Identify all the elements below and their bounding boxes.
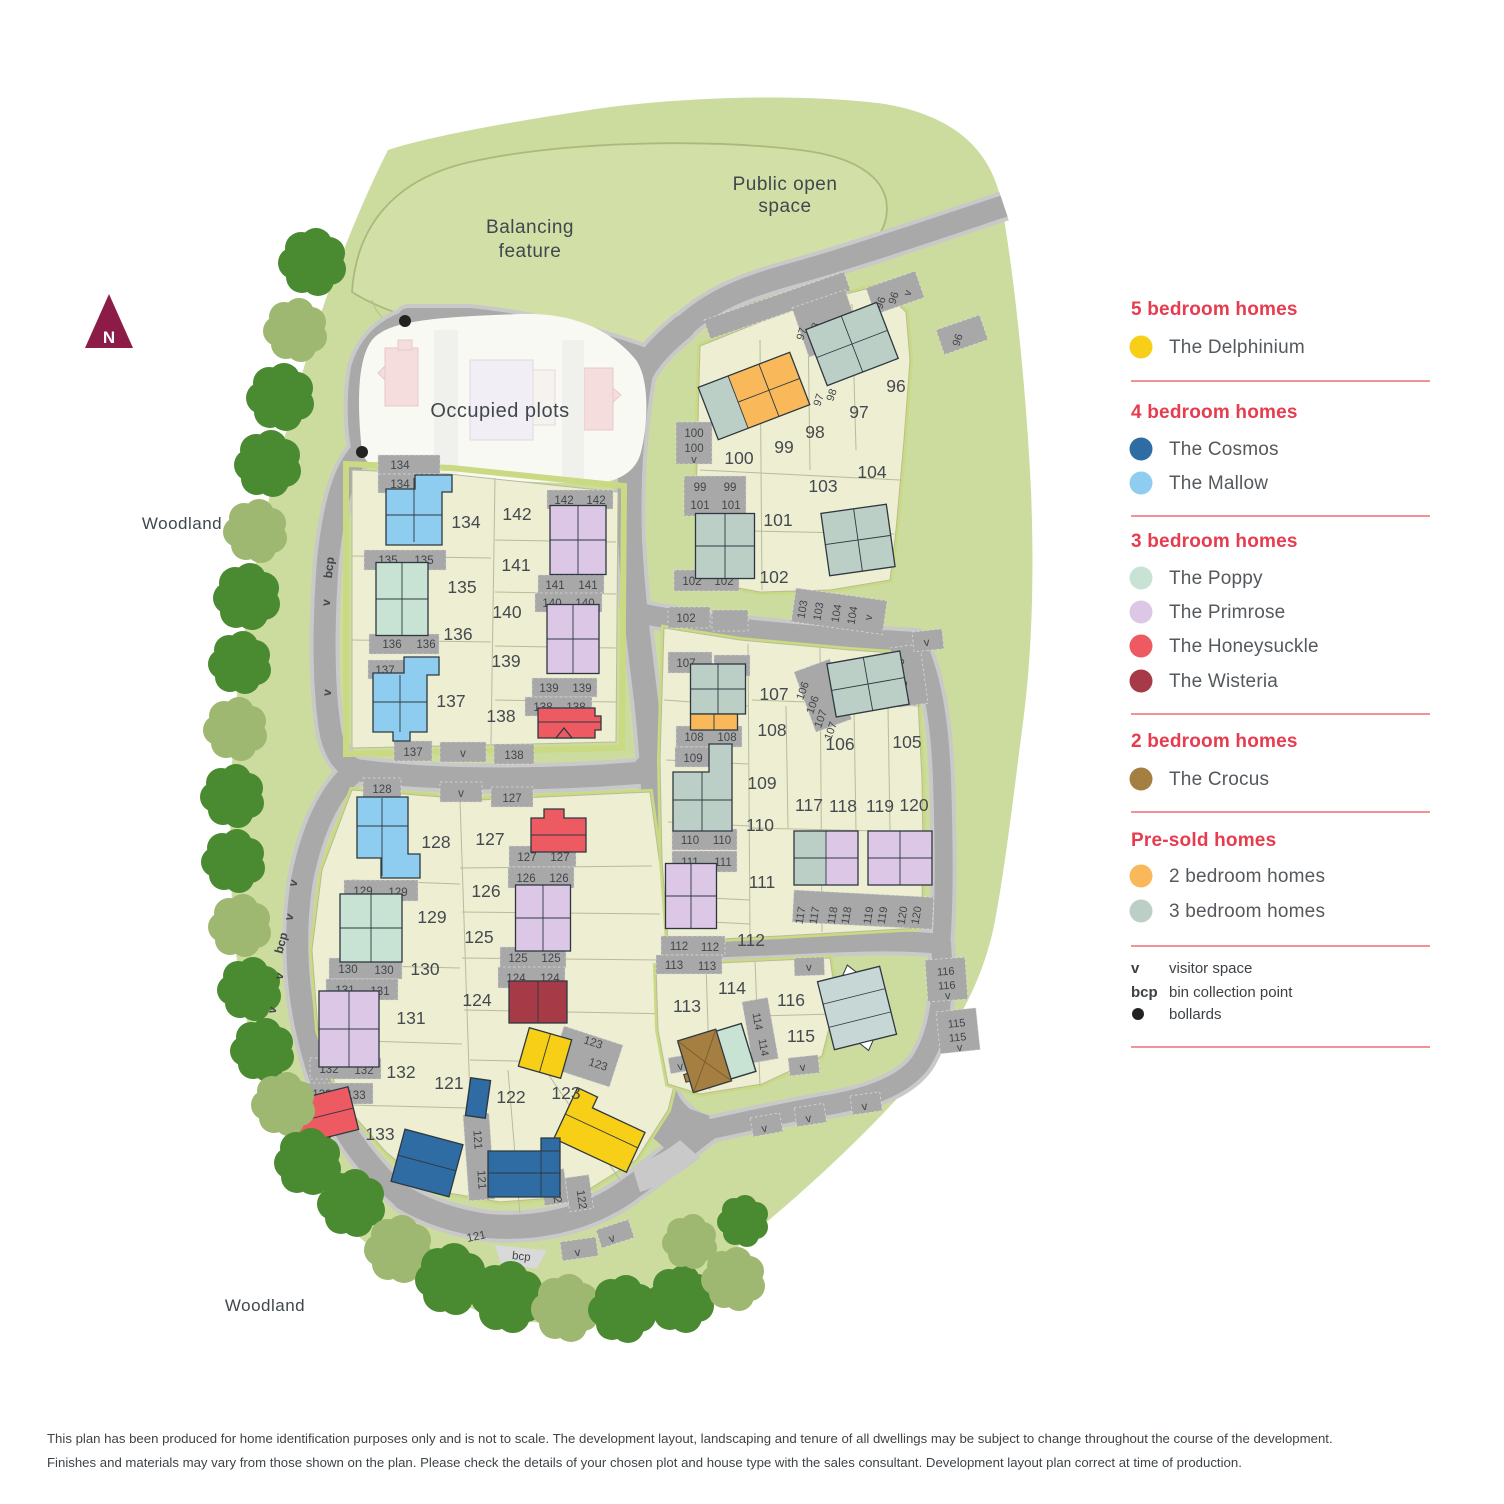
svg-text:visitor space: visitor space [1169, 960, 1252, 977]
svg-text:136: 136 [416, 639, 435, 651]
svg-text:4 bedroom homes: 4 bedroom homes [1131, 402, 1298, 423]
svg-text:bcp: bcp [1131, 984, 1158, 1001]
svg-text:3 bedroom homes: 3 bedroom homes [1131, 531, 1298, 552]
svg-text:102: 102 [676, 613, 695, 625]
svg-text:134: 134 [390, 460, 410, 472]
svg-text:116: 116 [937, 965, 955, 978]
svg-text:127: 127 [550, 852, 569, 864]
svg-text:bcp: bcp [321, 556, 337, 579]
svg-text:120: 120 [899, 795, 928, 815]
svg-text:111: 111 [749, 872, 776, 892]
svg-text:The Crocus: The Crocus [1169, 769, 1269, 790]
svg-text:134: 134 [451, 512, 480, 532]
svg-text:99: 99 [694, 482, 707, 494]
svg-text:2 bedroom homes: 2 bedroom homes [1131, 731, 1298, 752]
svg-text:112: 112 [737, 930, 765, 950]
svg-text:113: 113 [698, 961, 716, 973]
svg-text:127: 127 [502, 793, 521, 805]
svg-text:v: v [460, 748, 466, 760]
svg-text:3 bedroom homes: 3 bedroom homes [1169, 901, 1325, 922]
svg-text:136: 136 [443, 624, 472, 644]
svg-text:125: 125 [464, 927, 493, 947]
svg-text:138: 138 [486, 706, 515, 726]
svg-text:136: 136 [382, 639, 401, 651]
svg-text:129: 129 [417, 907, 446, 927]
svg-text:v: v [1131, 960, 1140, 977]
svg-text:141: 141 [578, 580, 597, 592]
svg-text:The Primrose: The Primrose [1169, 602, 1285, 623]
svg-text:Pre-sold homes: Pre-sold homes [1131, 830, 1276, 851]
svg-text:130: 130 [410, 959, 439, 979]
svg-text:135: 135 [447, 577, 476, 597]
svg-text:141: 141 [545, 580, 564, 592]
svg-text:The Cosmos: The Cosmos [1169, 439, 1279, 460]
svg-text:Finishes and materials may var: Finishes and materials may vary from tho… [47, 1455, 1242, 1470]
svg-text:109: 109 [683, 753, 702, 765]
svg-text:Woodland: Woodland [142, 514, 222, 533]
svg-text:109: 109 [747, 773, 776, 793]
svg-text:121: 121 [470, 1130, 483, 1150]
svg-text:123: 123 [551, 1083, 580, 1103]
svg-text:The Poppy: The Poppy [1169, 568, 1263, 589]
svg-text:121: 121 [474, 1170, 487, 1190]
svg-text:126: 126 [471, 881, 500, 901]
svg-text:137: 137 [436, 691, 465, 711]
svg-text:125: 125 [541, 953, 560, 965]
svg-text:v: v [458, 788, 464, 800]
svg-text:113: 113 [665, 960, 683, 972]
svg-text:121: 121 [434, 1073, 463, 1093]
svg-text:140: 140 [492, 602, 521, 622]
svg-text:116: 116 [777, 990, 805, 1010]
svg-text:Balancing: Balancing [486, 217, 574, 238]
svg-text:105: 105 [892, 732, 921, 752]
svg-text:98: 98 [805, 422, 824, 442]
svg-text:110: 110 [746, 815, 774, 835]
svg-text:130: 130 [338, 964, 357, 976]
svg-text:133: 133 [365, 1124, 394, 1144]
svg-text:The Delphinium: The Delphinium [1169, 337, 1305, 358]
svg-text:v: v [806, 962, 812, 974]
svg-text:v: v [691, 454, 697, 466]
svg-text:101: 101 [690, 500, 709, 512]
svg-text:feature: feature [499, 241, 562, 262]
svg-text:117: 117 [795, 795, 823, 815]
svg-text:139: 139 [539, 683, 558, 695]
svg-text:137: 137 [403, 747, 422, 759]
svg-text:114: 114 [718, 978, 746, 998]
svg-text:100: 100 [724, 448, 753, 468]
svg-text:96: 96 [886, 376, 905, 396]
svg-text:This plan has been produced fo: This plan has been produced for home ide… [47, 1431, 1333, 1446]
svg-text:128: 128 [372, 784, 391, 796]
svg-text:127: 127 [475, 829, 504, 849]
svg-text:132: 132 [386, 1062, 415, 1082]
svg-text:101: 101 [763, 510, 792, 530]
svg-text:101: 101 [721, 500, 740, 512]
svg-text:118: 118 [829, 796, 857, 816]
svg-text:bin collection point: bin collection point [1169, 984, 1293, 1001]
svg-text:125: 125 [508, 953, 527, 965]
svg-text:The Honeysuckle: The Honeysuckle [1169, 636, 1319, 657]
svg-text:138: 138 [504, 750, 523, 762]
svg-text:Woodland: Woodland [225, 1296, 305, 1315]
svg-text:124: 124 [462, 990, 491, 1010]
svg-text:131: 131 [396, 1008, 425, 1028]
svg-text:99: 99 [724, 482, 737, 494]
svg-text:N: N [103, 328, 115, 347]
svg-text:142: 142 [502, 504, 531, 524]
svg-text:115: 115 [787, 1026, 815, 1046]
svg-text:space: space [758, 196, 811, 217]
svg-text:110: 110 [681, 835, 699, 847]
svg-text:2 bedroom homes: 2 bedroom homes [1169, 866, 1325, 887]
svg-text:112: 112 [670, 941, 688, 953]
svg-text:103: 103 [808, 476, 837, 496]
svg-text:130: 130 [374, 965, 393, 977]
svg-text:108: 108 [757, 720, 786, 740]
svg-text:139: 139 [491, 651, 520, 671]
svg-text:113: 113 [673, 996, 701, 1016]
svg-text:bollards: bollards [1169, 1006, 1222, 1023]
svg-text:122: 122 [496, 1087, 525, 1107]
svg-text:126: 126 [516, 873, 535, 885]
svg-text:5 bedroom homes: 5 bedroom homes [1131, 299, 1298, 320]
svg-text:119: 119 [866, 796, 894, 816]
svg-text:110: 110 [713, 835, 731, 847]
svg-text:107: 107 [759, 684, 788, 704]
svg-text:97: 97 [849, 402, 868, 422]
svg-text:108: 108 [717, 732, 736, 744]
svg-text:108: 108 [684, 732, 703, 744]
svg-text:106: 106 [825, 734, 854, 754]
svg-text:The Mallow: The Mallow [1169, 473, 1268, 494]
svg-text:115: 115 [947, 1017, 966, 1031]
svg-text:128: 128 [421, 832, 450, 852]
svg-text:Occupied plots: Occupied plots [430, 400, 569, 422]
svg-text:139: 139 [572, 683, 591, 695]
svg-text:127: 127 [517, 852, 536, 864]
svg-text:102: 102 [759, 567, 788, 587]
svg-text:141: 141 [501, 555, 530, 575]
svg-text:100: 100 [684, 428, 703, 440]
svg-text:112: 112 [701, 942, 719, 954]
svg-text:The Wisteria: The Wisteria [1169, 671, 1278, 692]
svg-text:104: 104 [857, 462, 886, 482]
svg-text:126: 126 [549, 873, 568, 885]
svg-text:Public open: Public open [733, 174, 838, 195]
svg-text:99: 99 [774, 437, 793, 457]
